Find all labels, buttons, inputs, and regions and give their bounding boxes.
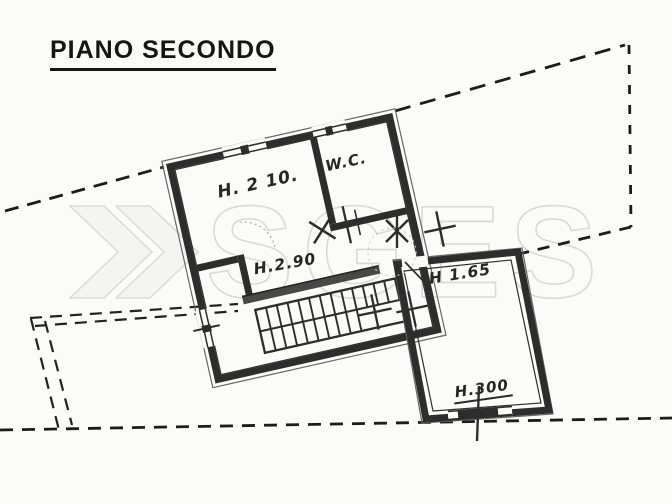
page-title: PIANO SECONDO: [50, 36, 276, 71]
floor-plan-page: PIANO SECONDO SGES: [0, 0, 672, 504]
window-symbol: [222, 138, 268, 160]
window-symbol: [311, 120, 347, 140]
floor-plan-canvas: SGES: [0, 0, 672, 504]
